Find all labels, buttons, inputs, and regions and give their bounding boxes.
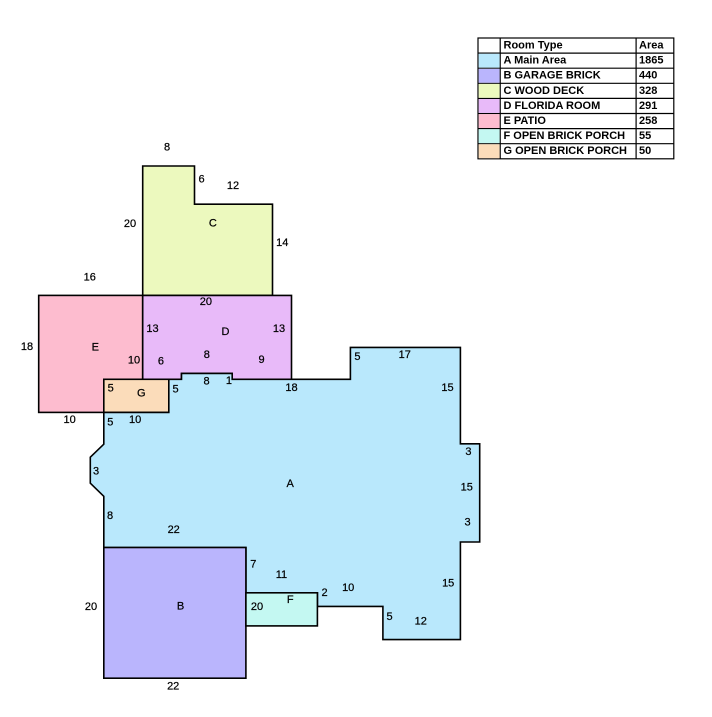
svg-text:A: A [287, 478, 295, 490]
svg-text:B: B [177, 601, 184, 613]
svg-text:22: 22 [167, 680, 179, 692]
svg-text:E: E [92, 342, 99, 354]
svg-text:8: 8 [203, 376, 209, 388]
svg-text:G OPEN BRICK PORCH: G OPEN BRICK PORCH [504, 145, 628, 157]
svg-text:3: 3 [93, 465, 99, 477]
svg-text:50: 50 [639, 145, 651, 157]
svg-text:6: 6 [198, 174, 204, 186]
svg-text:5: 5 [386, 611, 392, 623]
svg-text:291: 291 [639, 100, 657, 112]
svg-text:D: D [222, 326, 230, 338]
svg-text:C: C [209, 218, 217, 230]
svg-text:1865: 1865 [639, 55, 663, 67]
svg-text:6: 6 [158, 356, 164, 368]
svg-text:18: 18 [285, 382, 297, 394]
svg-text:13: 13 [146, 323, 158, 335]
svg-text:B GARAGE BRICK: B GARAGE BRICK [504, 70, 601, 82]
svg-text:A Main Area: A Main Area [504, 55, 568, 67]
svg-text:F: F [287, 594, 294, 606]
svg-text:440: 440 [639, 70, 657, 82]
svg-text:C WOOD DECK: C WOOD DECK [504, 85, 585, 97]
svg-text:12: 12 [227, 180, 239, 192]
svg-text:13: 13 [273, 323, 285, 335]
svg-text:10: 10 [128, 355, 140, 367]
svg-text:328: 328 [639, 85, 657, 97]
svg-text:14: 14 [276, 237, 288, 249]
svg-text:8: 8 [204, 349, 210, 361]
svg-text:258: 258 [639, 115, 657, 127]
svg-text:22: 22 [168, 524, 180, 536]
svg-text:D FLORIDA ROOM: D FLORIDA ROOM [504, 100, 601, 112]
svg-text:15: 15 [442, 578, 454, 590]
svg-text:E PATIO: E PATIO [504, 115, 547, 127]
svg-text:7: 7 [250, 558, 256, 570]
svg-text:12: 12 [415, 615, 427, 627]
svg-text:G: G [137, 387, 146, 399]
svg-text:20: 20 [85, 601, 97, 613]
svg-text:55: 55 [639, 130, 651, 142]
svg-text:5: 5 [107, 416, 113, 428]
svg-text:9: 9 [258, 354, 264, 366]
svg-text:11: 11 [276, 569, 287, 581]
svg-text:17: 17 [399, 349, 411, 361]
svg-text:20: 20 [251, 601, 263, 613]
svg-text:20: 20 [124, 218, 136, 230]
svg-text:5: 5 [172, 384, 178, 396]
svg-text:3: 3 [464, 517, 470, 529]
svg-text:5: 5 [108, 383, 114, 395]
svg-text:8: 8 [107, 510, 113, 522]
svg-text:16: 16 [84, 271, 96, 283]
svg-text:3: 3 [465, 446, 471, 458]
svg-text:1: 1 [226, 375, 232, 387]
svg-text:10: 10 [342, 582, 354, 594]
svg-text:20: 20 [200, 296, 212, 308]
svg-text:F OPEN BRICK PORCH: F OPEN BRICK PORCH [504, 130, 626, 142]
svg-text:10: 10 [129, 414, 141, 426]
svg-text:15: 15 [441, 382, 453, 394]
svg-text:10: 10 [63, 414, 75, 426]
svg-text:Room Type: Room Type [504, 40, 563, 52]
svg-text:5: 5 [354, 351, 360, 363]
svg-text:15: 15 [461, 481, 473, 493]
svg-text:18: 18 [21, 341, 33, 353]
svg-text:8: 8 [164, 142, 170, 154]
svg-text:2: 2 [322, 587, 328, 599]
svg-text:Area: Area [639, 40, 664, 52]
